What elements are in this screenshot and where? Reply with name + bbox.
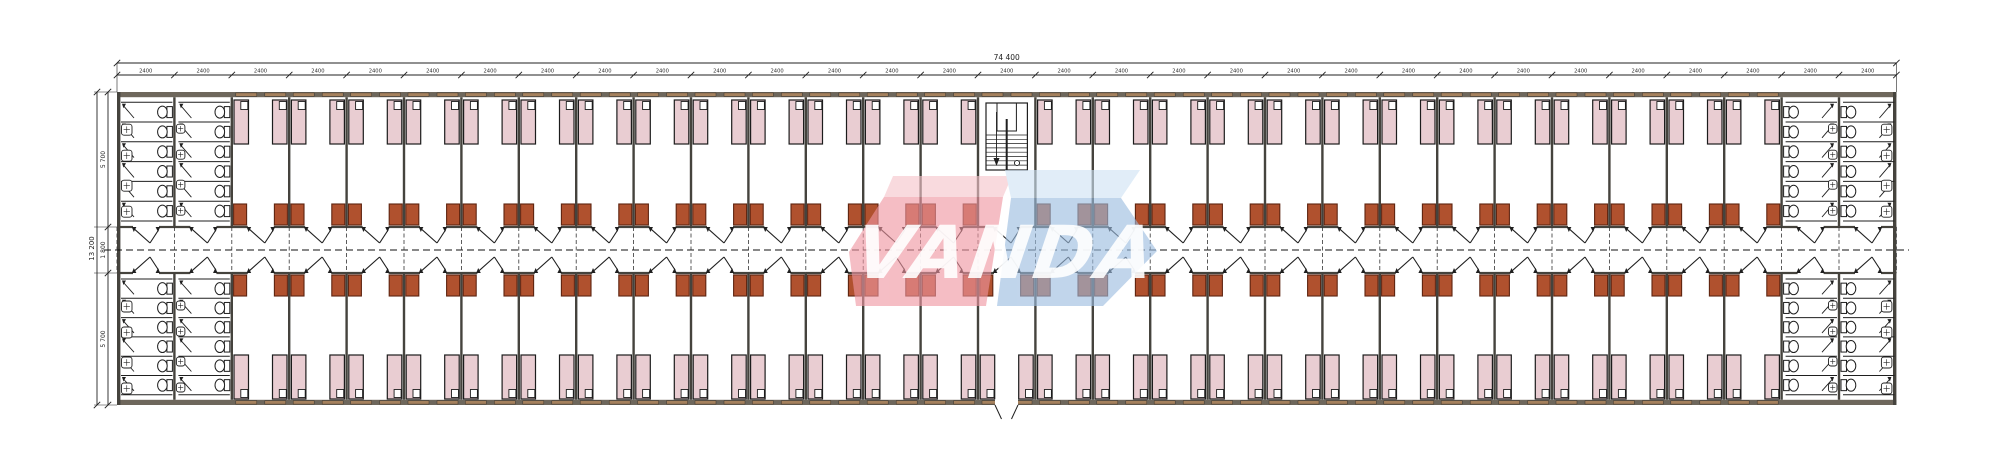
toilet-icon: [167, 283, 173, 294]
pillow: [1733, 390, 1740, 398]
wardrobe: [750, 204, 763, 225]
wardrobe: [619, 204, 632, 225]
wardrobe: [561, 275, 574, 296]
wardrobe: [463, 204, 476, 225]
toilet-icon: [167, 380, 173, 391]
toilet-icon: [158, 283, 168, 295]
toilet-icon: [1784, 186, 1790, 197]
pillow: [1083, 390, 1090, 398]
dimension-label-bay: 2400: [1804, 69, 1817, 75]
window: [580, 93, 601, 96]
wardrobe: [1709, 204, 1722, 225]
wardrobe: [1611, 275, 1624, 296]
wardrobe: [291, 204, 304, 225]
pillow: [356, 390, 363, 398]
toilet-icon: [1789, 341, 1799, 353]
pillow: [356, 102, 363, 110]
pillow: [968, 390, 975, 398]
toilet-icon: [215, 360, 225, 372]
pillow: [911, 390, 918, 398]
toilet-icon: [224, 166, 230, 177]
window: [1039, 93, 1060, 96]
pillow: [470, 102, 477, 110]
toilet-icon: [1846, 302, 1856, 314]
toilet-icon: [215, 166, 225, 178]
window: [494, 401, 515, 404]
window: [465, 93, 486, 96]
toilet-icon: [167, 360, 173, 371]
dimension-label-bay: 2400: [139, 69, 152, 75]
window: [839, 401, 860, 404]
wardrobe: [1422, 275, 1435, 296]
toilet-icon: [215, 283, 225, 295]
window: [1326, 93, 1347, 96]
wardrobe: [348, 204, 361, 225]
wardrobe: [1652, 204, 1665, 225]
toilet-icon: [1784, 107, 1790, 118]
wardrobe: [734, 204, 747, 225]
toilet-icon: [215, 126, 225, 138]
watermark-blue-top-face: [1005, 170, 1140, 198]
wardrobe: [1324, 204, 1337, 225]
window: [1384, 401, 1405, 404]
toilet-icon: [1846, 185, 1856, 197]
toilet-icon: [167, 341, 173, 352]
pillow: [509, 102, 516, 110]
pillow: [585, 102, 592, 110]
pillow: [1044, 390, 1051, 398]
window: [1068, 93, 1089, 96]
wardrobe: [1554, 204, 1567, 225]
toilet-icon: [1841, 107, 1847, 118]
wardrobe: [1767, 204, 1780, 225]
end-wall-left: [117, 92, 120, 405]
wardrobe: [635, 275, 648, 296]
pillow: [1255, 102, 1262, 110]
pillow: [1561, 390, 1568, 398]
pillow: [241, 102, 248, 110]
watermark-pink-top-face: [884, 176, 1012, 197]
pillow: [1676, 102, 1683, 110]
toilet-icon: [224, 206, 230, 217]
pillow: [298, 102, 305, 110]
window: [1470, 401, 1491, 404]
window: [1757, 401, 1778, 404]
wardrobe: [1250, 204, 1263, 225]
wardrobe: [406, 275, 419, 296]
window: [437, 401, 458, 404]
dimension-label-bay: 2400: [1861, 69, 1874, 75]
wardrobe: [1365, 275, 1378, 296]
wardrobe: [1193, 204, 1206, 225]
window: [638, 401, 659, 404]
pillow: [1217, 390, 1224, 398]
wardrobe: [808, 275, 821, 296]
window: [1441, 93, 1462, 96]
pillow: [872, 390, 879, 398]
pillow: [528, 390, 535, 398]
wardrobe: [389, 204, 402, 225]
toilet-icon: [215, 321, 225, 333]
pillow: [1140, 390, 1147, 398]
pillow: [1389, 102, 1396, 110]
wardrobe: [1422, 204, 1435, 225]
pillow: [1427, 390, 1434, 398]
pillow: [1676, 390, 1683, 398]
toilet-icon: [158, 185, 168, 197]
pillow: [279, 390, 286, 398]
toilet-icon: [215, 379, 225, 391]
wardrobe: [791, 275, 804, 296]
window: [408, 401, 429, 404]
pillow: [872, 102, 879, 110]
window: [752, 93, 773, 96]
toilet-icon: [1841, 380, 1847, 391]
wardrobe: [1365, 204, 1378, 225]
window: [867, 93, 888, 96]
pillow: [1485, 102, 1492, 110]
pillow: [452, 102, 459, 110]
window: [1642, 401, 1663, 404]
pillow: [1504, 390, 1511, 398]
window: [925, 401, 946, 404]
wardrobe: [1439, 275, 1452, 296]
pillow: [1198, 390, 1205, 398]
window: [293, 93, 314, 96]
wardrobe: [291, 275, 304, 296]
pillow: [452, 390, 459, 398]
toilet-icon: [1789, 126, 1799, 138]
watermark-text: VANDA: [850, 211, 1163, 296]
window: [1154, 93, 1175, 96]
window: [1097, 401, 1118, 404]
wardrobe: [676, 275, 689, 296]
pillow: [796, 102, 803, 110]
window: [1269, 401, 1290, 404]
toilet-icon: [1841, 360, 1847, 371]
toilet-icon: [1789, 106, 1799, 118]
pillow: [1044, 102, 1051, 110]
window: [1241, 401, 1262, 404]
pillow: [1772, 102, 1779, 110]
wardrobe: [1308, 204, 1321, 225]
window: [1241, 93, 1262, 96]
window: [609, 401, 630, 404]
wardrobe: [750, 275, 763, 296]
pillow: [413, 390, 420, 398]
pillow: [757, 390, 764, 398]
toilet-icon: [1841, 126, 1847, 137]
pillow: [1274, 102, 1281, 110]
wardrobe: [332, 275, 345, 296]
pillow: [1217, 102, 1224, 110]
toilet-icon: [1841, 302, 1847, 313]
pillow: [1618, 102, 1625, 110]
toilet-icon: [167, 126, 173, 137]
toilet-icon: [224, 146, 230, 157]
window: [667, 93, 688, 96]
wardrobe: [234, 204, 247, 225]
pillow: [1542, 102, 1549, 110]
toilet-icon: [215, 185, 225, 197]
wardrobe: [274, 204, 287, 225]
pillow: [1714, 102, 1721, 110]
pillow: [1600, 390, 1607, 398]
wardrobe: [504, 204, 517, 225]
wardrobe: [1480, 275, 1493, 296]
toilet-icon: [1841, 186, 1847, 197]
window: [1355, 401, 1376, 404]
window: [954, 93, 975, 96]
window: [322, 401, 343, 404]
wardrobe: [561, 204, 574, 225]
wardrobe: [1709, 275, 1722, 296]
toilet-icon: [1789, 321, 1799, 333]
window: [351, 401, 372, 404]
pillow: [853, 390, 860, 398]
toilet-icon: [1789, 360, 1799, 372]
pillow: [394, 102, 401, 110]
entrance-opening: [995, 399, 1018, 406]
toilet-icon: [1846, 379, 1856, 391]
toilet-icon: [224, 341, 230, 352]
toilet-icon: [1784, 380, 1790, 391]
dimension-label-bay: 2400: [426, 69, 439, 75]
wardrobe: [1308, 275, 1321, 296]
wardrobe: [521, 275, 534, 296]
wardrobe: [521, 204, 534, 225]
dimension-label-bay: 2400: [541, 69, 554, 75]
window: [1298, 93, 1319, 96]
window: [1671, 401, 1692, 404]
dimension-label-bay: 2400: [1230, 69, 1243, 75]
window: [1441, 401, 1462, 404]
pillow: [700, 390, 707, 398]
window: [781, 401, 802, 404]
window: [1585, 401, 1606, 404]
window: [867, 401, 888, 404]
window: [465, 401, 486, 404]
wardrobe: [1439, 204, 1452, 225]
pillow: [643, 390, 650, 398]
toilet-icon: [1846, 106, 1856, 118]
pillow: [337, 390, 344, 398]
dimension-label-bay: 2400: [1344, 69, 1357, 75]
window: [1126, 93, 1147, 96]
window: [236, 93, 257, 96]
window: [1011, 93, 1032, 96]
wardrobe: [447, 275, 460, 296]
pillow: [470, 390, 477, 398]
dimension-label-bay: 2400: [483, 69, 496, 75]
window: [1384, 93, 1405, 96]
toilet-icon: [224, 322, 230, 333]
pillow: [1370, 102, 1377, 110]
wardrobe: [1611, 204, 1624, 225]
window: [1728, 93, 1749, 96]
toilet-icon: [1789, 302, 1799, 314]
pillow: [1427, 102, 1434, 110]
window: [1556, 401, 1577, 404]
window: [580, 401, 601, 404]
pillow: [1198, 102, 1205, 110]
pillow: [566, 390, 573, 398]
wardrobe: [1669, 275, 1682, 296]
toilet-icon: [224, 360, 230, 371]
pillow: [643, 102, 650, 110]
pillow: [1446, 102, 1453, 110]
window: [1212, 93, 1233, 96]
pillow: [624, 390, 631, 398]
toilet-icon: [1784, 206, 1790, 217]
pillow: [1083, 102, 1090, 110]
floor-plan-drawing: 74 4002400240024002400240024002400240024…: [0, 0, 2000, 474]
pillow: [968, 102, 975, 110]
wardrobe: [1382, 275, 1395, 296]
window: [1298, 401, 1319, 404]
window: [752, 401, 773, 404]
toilet-icon: [158, 379, 168, 391]
toilet-icon: [1846, 321, 1856, 333]
pillow: [624, 102, 631, 110]
wardrobe: [1554, 275, 1567, 296]
window: [896, 401, 917, 404]
pillow: [585, 390, 592, 398]
toilet-icon: [224, 380, 230, 391]
dimension-label-bay: 2400: [598, 69, 611, 75]
pillow: [796, 390, 803, 398]
dimension-label-bay: 2400: [311, 69, 324, 75]
toilet-icon: [1841, 341, 1847, 352]
window: [1499, 401, 1520, 404]
window: [1183, 93, 1204, 96]
wardrobe: [1595, 204, 1608, 225]
window: [1556, 93, 1577, 96]
toilet-icon: [1841, 283, 1847, 294]
pillow: [930, 102, 937, 110]
window: [1355, 93, 1376, 96]
dimension-label-bay: 2400: [1115, 69, 1128, 75]
pillow: [1733, 102, 1740, 110]
toilet-icon: [1846, 360, 1856, 372]
pillow: [930, 390, 937, 398]
wardrobe: [1669, 204, 1682, 225]
window: [1671, 93, 1692, 96]
window: [982, 93, 1003, 96]
toilet-icon: [215, 302, 225, 314]
dimension-label-bay: 2400: [196, 69, 209, 75]
pillow: [1485, 390, 1492, 398]
dimension-label-bay: 2400: [1689, 69, 1702, 75]
pillow: [1331, 102, 1338, 110]
toilet-icon: [1846, 341, 1856, 353]
toilet-icon: [1846, 205, 1856, 217]
window: [408, 93, 429, 96]
window: [552, 93, 573, 96]
pillow: [1657, 102, 1664, 110]
window: [322, 93, 343, 96]
wardrobe: [1193, 275, 1206, 296]
wardrobe: [1209, 204, 1222, 225]
pillow: [413, 102, 420, 110]
window: [1700, 401, 1721, 404]
toilet-icon: [1841, 322, 1847, 333]
window: [1585, 93, 1606, 96]
pillow: [700, 102, 707, 110]
window: [1528, 401, 1549, 404]
pillow: [1274, 390, 1281, 398]
wardrobe: [578, 204, 591, 225]
wardrobe: [1537, 204, 1550, 225]
pillow: [1102, 102, 1109, 110]
window: [265, 401, 286, 404]
toilet-icon: [215, 146, 225, 158]
wardrobe: [1726, 204, 1739, 225]
pillow: [1313, 390, 1320, 398]
wardrobe: [1209, 275, 1222, 296]
window: [1499, 93, 1520, 96]
pillow: [681, 102, 688, 110]
window: [695, 93, 716, 96]
dimension-label-lower-depth: 5 700: [100, 330, 107, 347]
window: [523, 401, 544, 404]
toilet-icon: [167, 206, 173, 217]
wardrobe: [504, 275, 517, 296]
pillow: [1542, 390, 1549, 398]
window: [351, 93, 372, 96]
toilet-icon: [1789, 146, 1799, 158]
window: [695, 401, 716, 404]
pillow: [1561, 102, 1568, 110]
pillow: [1331, 390, 1338, 398]
pillow: [394, 390, 401, 398]
window: [1326, 401, 1347, 404]
toilet-icon: [167, 166, 173, 177]
toilet-icon: [1846, 283, 1856, 295]
wardrobe: [332, 204, 345, 225]
wardrobe: [1267, 204, 1280, 225]
stair-post: [1014, 160, 1019, 165]
wardrobe: [1152, 275, 1165, 296]
window: [1269, 93, 1290, 96]
wardrobe: [1496, 204, 1509, 225]
window: [380, 93, 401, 96]
toilet-icon: [158, 166, 168, 178]
window: [1700, 93, 1721, 96]
wardrobe: [635, 204, 648, 225]
toilet-icon: [1784, 126, 1790, 137]
toilet-icon: [158, 126, 168, 138]
window: [810, 401, 831, 404]
window: [1470, 93, 1491, 96]
toilet-icon: [1784, 341, 1790, 352]
toilet-icon: [1789, 166, 1799, 178]
window: [1413, 401, 1434, 404]
wardrobe: [1595, 275, 1608, 296]
toilet-icon: [158, 106, 168, 118]
pillow: [1159, 102, 1166, 110]
toilet-icon: [1784, 302, 1790, 313]
dimension-label-bay: 2400: [1574, 69, 1587, 75]
toilet-icon: [167, 322, 173, 333]
toilet-icon: [167, 107, 173, 118]
wardrobe: [1767, 275, 1780, 296]
window: [925, 93, 946, 96]
pillow: [739, 390, 746, 398]
window: [810, 93, 831, 96]
dimension-label-bay: 2400: [943, 69, 956, 75]
wardrobe: [389, 275, 402, 296]
